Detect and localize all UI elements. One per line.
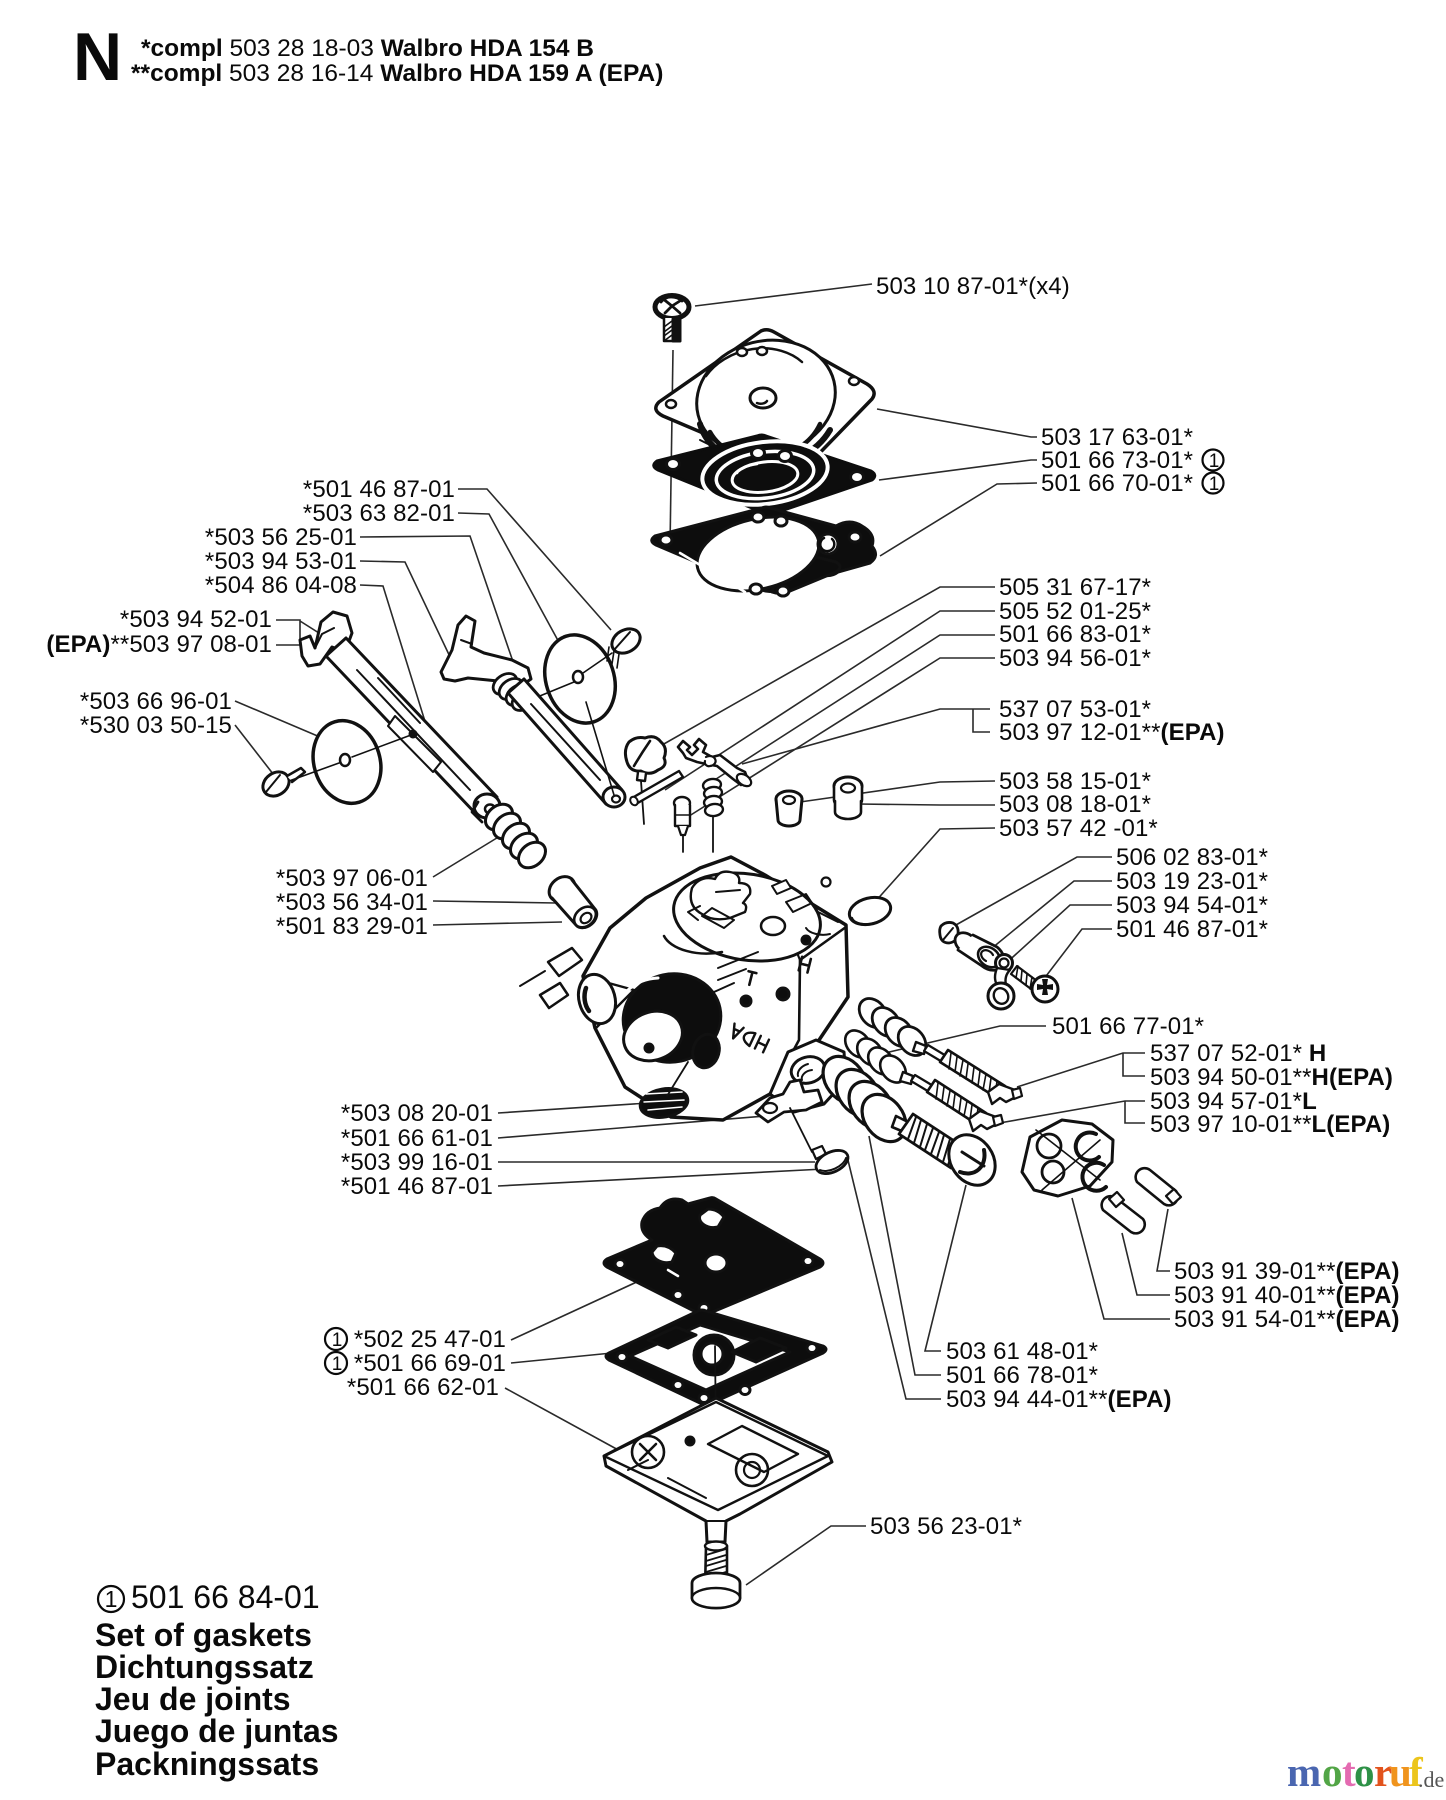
svg-text:501 66 70-01*: 501 66 70-01*: [1041, 470, 1193, 497]
svg-text:501 66 78-01*: 501 66 78-01*: [946, 1362, 1098, 1389]
svg-text:.de: .de: [1418, 1767, 1444, 1792]
svg-text:1: 1: [1209, 474, 1220, 495]
svg-text:505 31 67-17*: 505 31 67-17*: [999, 574, 1151, 601]
svg-text:*502 25 47-01: *502 25 47-01: [354, 1326, 506, 1353]
svg-text:Packningssats: Packningssats: [95, 1746, 319, 1782]
svg-text:*501 46 87-01: *501 46 87-01: [341, 1173, 493, 1200]
svg-text:503 91 39-01**(EPA): 503 91 39-01**(EPA): [1174, 1258, 1400, 1285]
svg-text:1: 1: [105, 1586, 118, 1612]
svg-text:503 91 54-01**(EPA): 503 91 54-01**(EPA): [1174, 1306, 1400, 1333]
svg-text:**compl 503 28 16-14 Walbro H: **compl 503 28 16-14 Walbro HDA 159 A (E…: [131, 60, 663, 87]
svg-text:501 66 77-01*: 501 66 77-01*: [1052, 1013, 1204, 1040]
svg-text:*501 83 29-01: *501 83 29-01: [276, 913, 428, 940]
svg-text:503 97 12-01**(EPA): 503 97 12-01**(EPA): [999, 719, 1225, 746]
svg-text:503 19 23-01*: 503 19 23-01*: [1116, 868, 1268, 895]
svg-text:503 56 23-01*: 503 56 23-01*: [870, 1513, 1022, 1540]
svg-text:*503 63 82-01: *503 63 82-01: [303, 500, 455, 527]
svg-text:501 66 83-01*: 501 66 83-01*: [999, 621, 1151, 648]
svg-text:*501 46 87-01: *501 46 87-01: [303, 476, 455, 503]
svg-text:503 57 42 -01*: 503 57 42 -01*: [999, 815, 1158, 842]
svg-text:506 02 83-01*: 506 02 83-01*: [1116, 844, 1268, 871]
svg-text:*501 66 69-01: *501 66 69-01: [354, 1350, 506, 1377]
svg-text:503 10 87-01*(x4): 503 10 87-01*(x4): [876, 273, 1070, 300]
svg-text:*503 99 16-01: *503 99 16-01: [341, 1149, 493, 1176]
svg-text:*503 08 20-01: *503 08 20-01: [341, 1100, 493, 1127]
svg-text:503 97 10-01**L(EPA): 503 97 10-01**L(EPA): [1150, 1111, 1390, 1138]
svg-text:o: o: [1354, 1749, 1375, 1795]
svg-text:503 94 54-01*: 503 94 54-01*: [1116, 892, 1268, 919]
svg-text:1: 1: [332, 1330, 343, 1351]
svg-text:503 08 18-01*: 503 08 18-01*: [999, 791, 1151, 818]
svg-text:*503 94 52-01: *503 94 52-01: [120, 606, 272, 633]
svg-text:*compl 503 28 18-03 Walbro HD: *compl 503 28 18-03 Walbro HDA 154 B: [141, 35, 594, 62]
svg-text:Set of gaskets: Set of gaskets: [95, 1617, 312, 1653]
svg-text:501 66 84-01: 501 66 84-01: [131, 1579, 320, 1615]
svg-text:501 46 87-01*: 501 46 87-01*: [1116, 916, 1268, 943]
svg-text:503 94 50-01**H(EPA): 503 94 50-01**H(EPA): [1150, 1064, 1393, 1091]
svg-text:*503 66 96-01: *503 66 96-01: [80, 688, 232, 715]
svg-text:503 61 48-01*: 503 61 48-01*: [946, 1338, 1098, 1365]
svg-text:Dichtungssatz: Dichtungssatz: [95, 1649, 314, 1685]
svg-text:*503 56 34-01: *503 56 34-01: [276, 889, 428, 916]
svg-text:503 91 40-01**(EPA): 503 91 40-01**(EPA): [1174, 1282, 1400, 1309]
svg-text:1: 1: [1209, 451, 1220, 472]
svg-text:*503 97 06-01: *503 97 06-01: [276, 865, 428, 892]
svg-text:o: o: [1322, 1749, 1343, 1795]
svg-text:*503 94 53-01: *503 94 53-01: [205, 548, 357, 575]
svg-text:N: N: [73, 19, 122, 95]
svg-text:503 94 56-01*: 503 94 56-01*: [999, 645, 1151, 672]
svg-text:*504 86 04-08: *504 86 04-08: [205, 572, 357, 599]
svg-text:Jeu de joints: Jeu de joints: [95, 1681, 291, 1717]
svg-text:m: m: [1287, 1749, 1321, 1795]
svg-text:Juego de juntas: Juego de juntas: [95, 1713, 339, 1749]
svg-text:537 07 52-01* H: 537 07 52-01* H: [1150, 1040, 1326, 1067]
svg-text:(EPA)**503 97 08-01: (EPA)**503 97 08-01: [46, 631, 272, 658]
svg-text:503 94 44-01**(EPA): 503 94 44-01**(EPA): [946, 1386, 1172, 1413]
svg-text:1: 1: [332, 1354, 343, 1375]
svg-text:*530 03 50-15: *530 03 50-15: [80, 712, 232, 739]
svg-text:*503 56 25-01: *503 56 25-01: [205, 524, 357, 551]
svg-text:*501 66 62-01: *501 66 62-01: [347, 1374, 499, 1401]
svg-text:*501 66 61-01: *501 66 61-01: [341, 1125, 493, 1152]
